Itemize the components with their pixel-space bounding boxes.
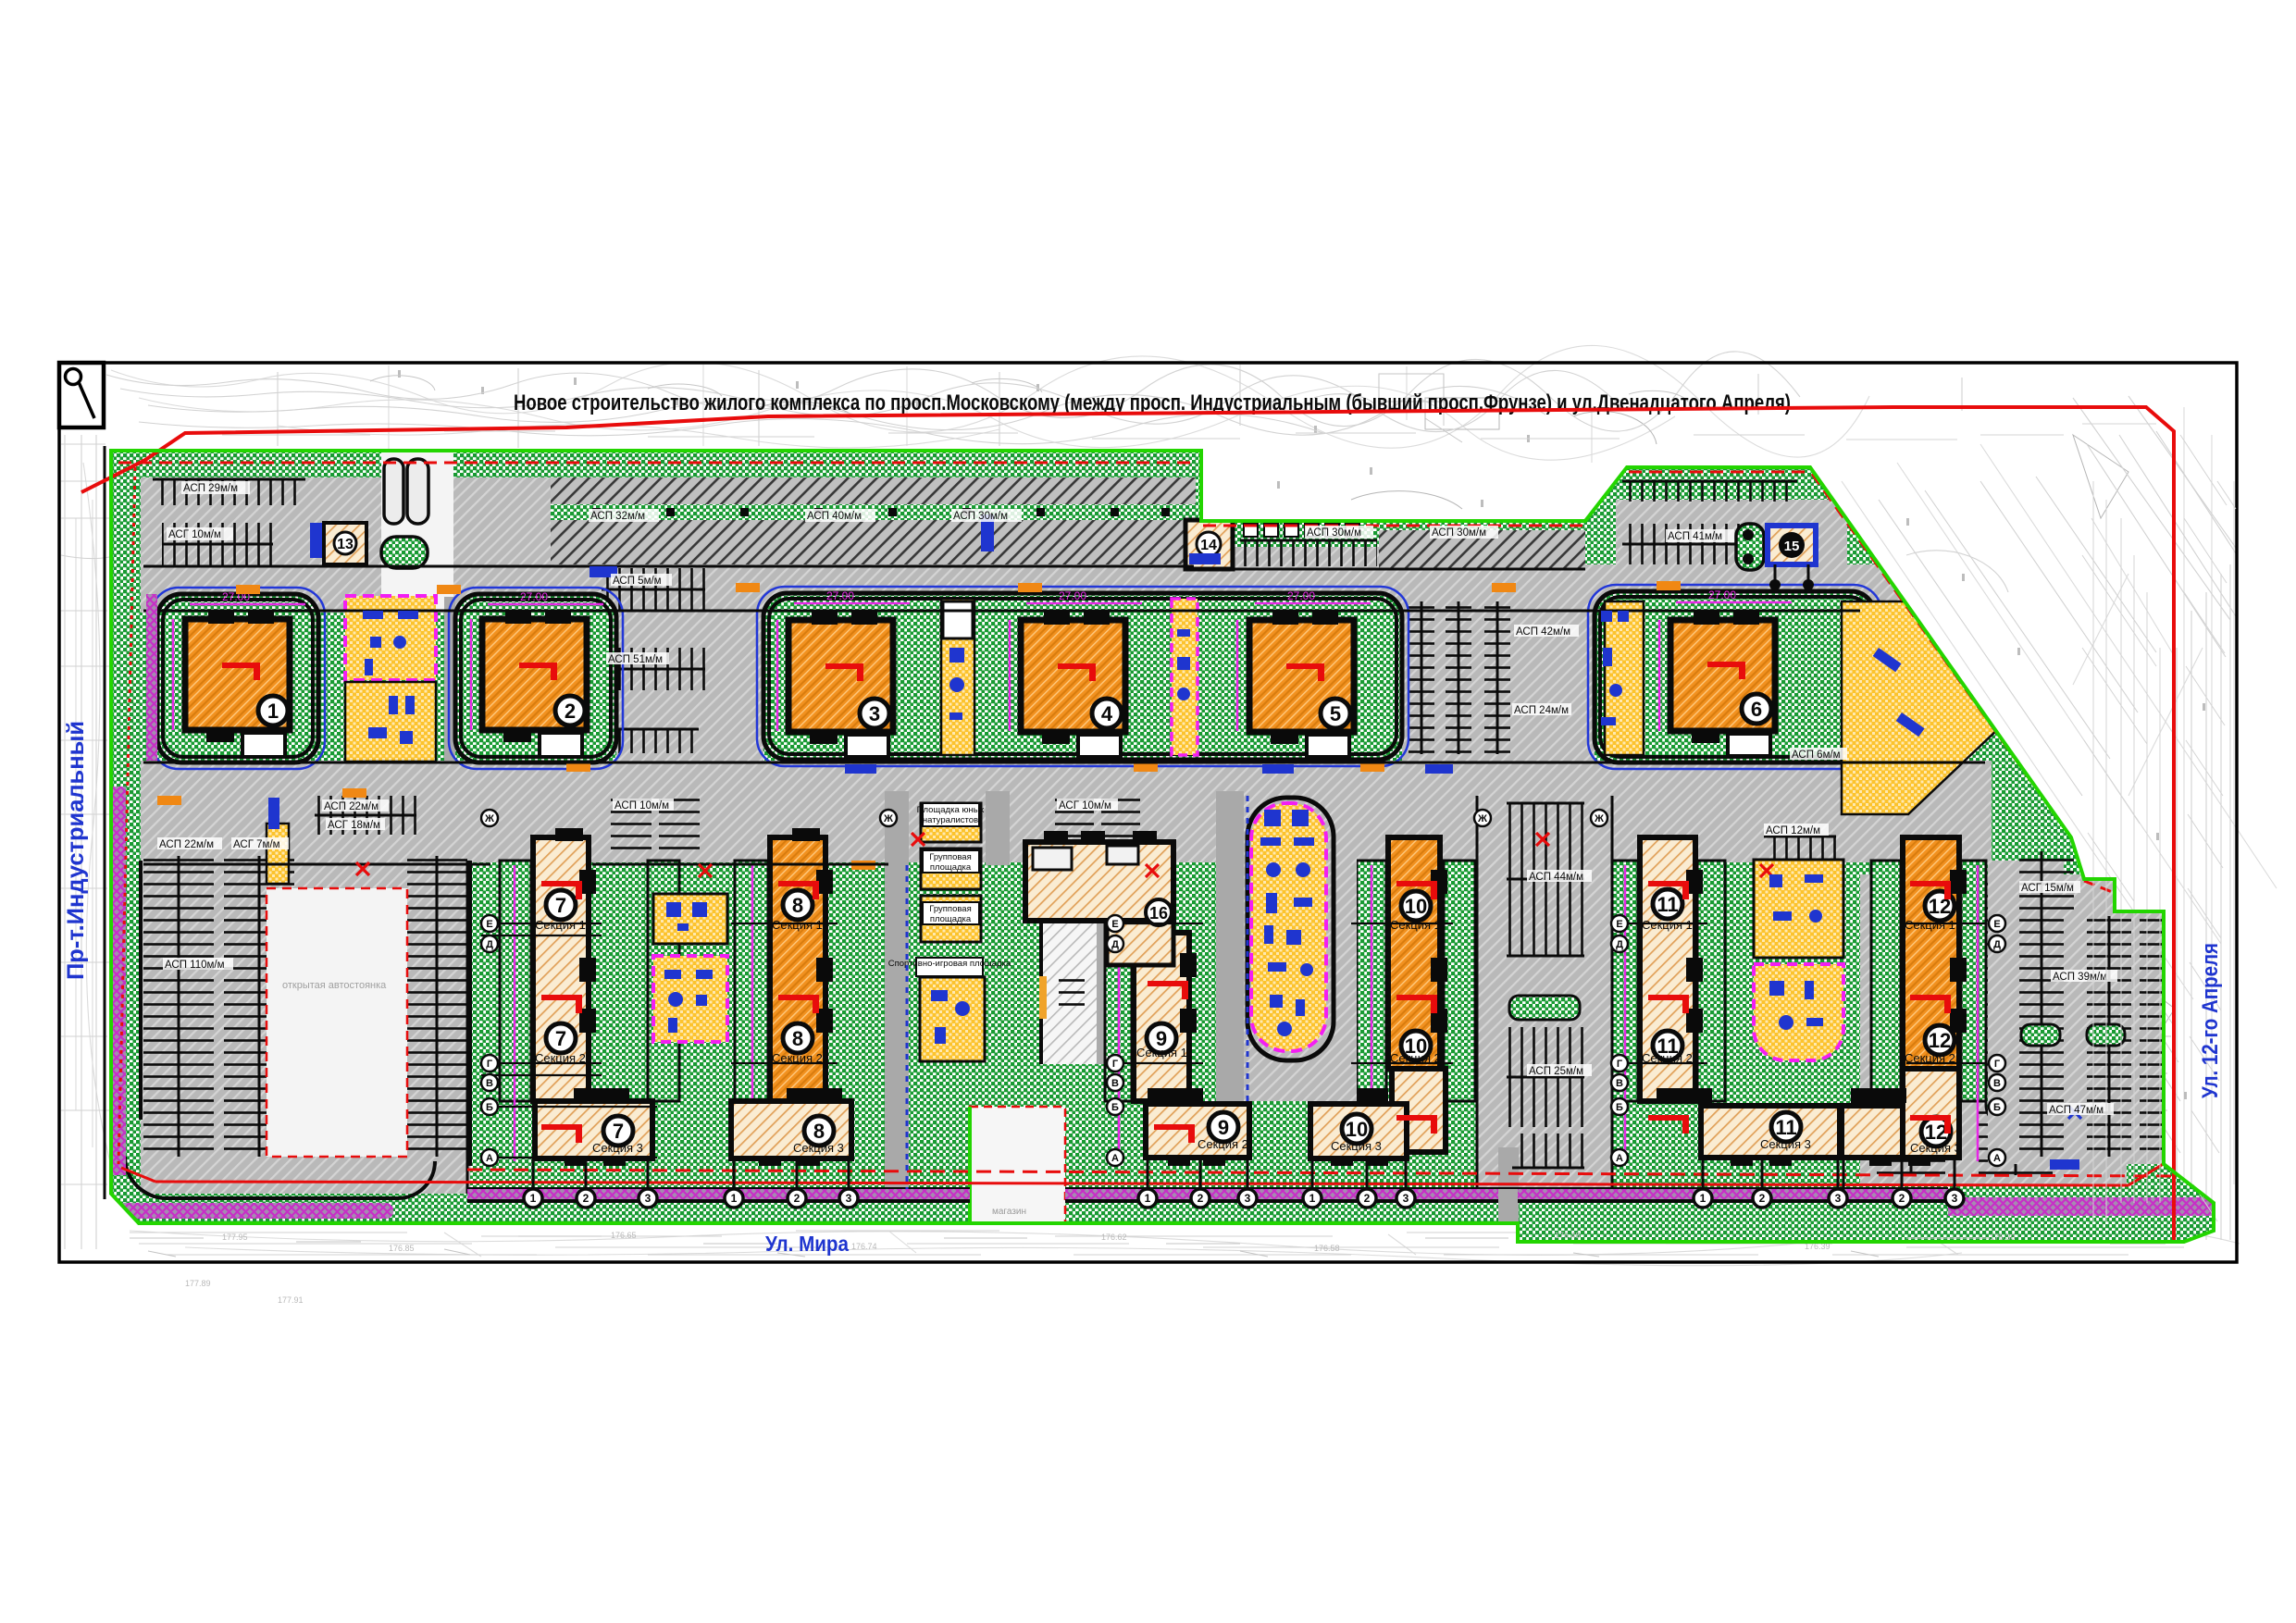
svg-text:АСП 25м/м: АСП 25м/м — [1529, 1066, 1583, 1077]
svg-text:4: 4 — [1101, 702, 1113, 725]
svg-text:Д: Д — [1111, 939, 1119, 950]
svg-text:Г: Г — [1112, 1059, 1119, 1070]
svg-text:2: 2 — [794, 1192, 800, 1205]
svg-text:Групповая: Групповая — [929, 852, 971, 862]
svg-text:открытая автостоянка: открытая автостоянка — [282, 980, 387, 991]
svg-text:Секция 1: Секция 1 — [1905, 918, 1955, 932]
svg-text:АСГ 10м/м: АСГ 10м/м — [1059, 800, 1111, 811]
svg-text:АСП 110м/м: АСП 110м/м — [165, 960, 225, 971]
svg-text:14: 14 — [1200, 538, 1217, 553]
svg-text:АСП 42м/м: АСП 42м/м — [1516, 626, 1570, 638]
svg-text:Д: Д — [1616, 939, 1623, 950]
svg-text:1: 1 — [267, 700, 279, 723]
svg-text:Ул. Мира: Ул. Мира — [765, 1232, 849, 1256]
svg-text:АСП 41м/м: АСП 41м/м — [1668, 531, 1722, 542]
svg-text:Секция 1: Секция 1 — [1136, 1046, 1187, 1059]
svg-text:27.00: 27.00 — [1287, 589, 1315, 602]
svg-text:АСП 51м/м: АСП 51м/м — [608, 654, 663, 665]
svg-text:Б: Б — [1616, 1102, 1623, 1113]
svg-text:Г: Г — [1994, 1059, 2001, 1070]
svg-text:Секция 3: Секция 3 — [1331, 1139, 1382, 1153]
svg-text:1: 1 — [1309, 1192, 1316, 1205]
svg-text:Ж: Ж — [1594, 813, 1604, 824]
svg-text:7: 7 — [555, 894, 566, 917]
svg-text:Секция 1: Секция 1 — [535, 918, 586, 932]
svg-text:Секция 3: Секция 3 — [592, 1141, 643, 1155]
svg-text:В: В — [1616, 1078, 1623, 1089]
svg-text:9: 9 — [1218, 1116, 1229, 1139]
svg-text:3: 3 — [1835, 1192, 1842, 1205]
svg-text:Пр-т.Индустриальный: Пр-т.Индустриальный — [63, 721, 89, 980]
svg-text:А: А — [1616, 1153, 1623, 1164]
svg-text:Д: Д — [1993, 939, 2001, 950]
svg-text:Ж: Ж — [883, 813, 893, 824]
svg-text:27.00: 27.00 — [1059, 589, 1086, 602]
svg-text:16: 16 — [1149, 904, 1168, 923]
svg-text:АСГ 15м/м: АСГ 15м/м — [2021, 883, 2074, 894]
svg-text:А: А — [486, 1153, 493, 1164]
svg-text:Секция 2: Секция 2 — [1198, 1137, 1248, 1151]
svg-text:АСП 5м/м: АСП 5м/м — [613, 576, 662, 587]
svg-text:1: 1 — [1700, 1192, 1706, 1205]
svg-text:176.65: 176.65 — [611, 1231, 637, 1240]
svg-text:АСП 30м/м: АСП 30м/м — [953, 511, 1008, 522]
svg-text:АСП 24м/м: АСП 24м/м — [1514, 705, 1569, 716]
svg-text:АСП 29м/м: АСП 29м/м — [183, 483, 238, 494]
svg-text:3: 3 — [869, 702, 880, 725]
svg-text:8: 8 — [792, 894, 803, 917]
svg-text:Секция 3: Секция 3 — [1760, 1137, 1811, 1151]
svg-text:Групповая: Групповая — [929, 904, 971, 914]
svg-text:1: 1 — [530, 1192, 537, 1205]
svg-text:15: 15 — [1784, 539, 1800, 554]
svg-text:Б: Б — [1111, 1102, 1119, 1113]
svg-text:АСП 44м/м: АСП 44м/м — [1529, 872, 1583, 883]
svg-text:11: 11 — [1657, 893, 1678, 916]
svg-text:176.48: 176.48 — [1555, 1231, 1581, 1240]
svg-text:176.62: 176.62 — [1101, 1233, 1127, 1242]
svg-text:177.91: 177.91 — [278, 1295, 304, 1305]
svg-text:2: 2 — [565, 700, 576, 723]
svg-text:8: 8 — [813, 1120, 825, 1143]
svg-text:176.74: 176.74 — [851, 1242, 877, 1251]
svg-text:АСГ 18м/м: АСГ 18м/м — [328, 820, 380, 831]
svg-text:27.00: 27.00 — [520, 590, 548, 603]
svg-text:3: 3 — [846, 1192, 852, 1205]
svg-text:А: А — [1993, 1153, 2001, 1164]
svg-text:5: 5 — [1330, 702, 1341, 725]
svg-text:АСП 10м/м: АСП 10м/м — [614, 800, 669, 811]
svg-text:магазин: магазин — [992, 1207, 1026, 1217]
svg-text:177.89: 177.89 — [185, 1279, 211, 1288]
svg-text:1: 1 — [731, 1192, 738, 1205]
svg-text:натуралистов: натуралистов — [923, 815, 978, 825]
svg-text:Е: Е — [1111, 919, 1118, 930]
svg-text:176.85: 176.85 — [389, 1244, 415, 1253]
svg-text:АСП 32м/м: АСП 32м/м — [590, 511, 645, 522]
svg-text:13: 13 — [337, 537, 354, 552]
svg-text:10: 10 — [1346, 1118, 1368, 1141]
svg-text:2: 2 — [1899, 1192, 1905, 1205]
svg-text:7: 7 — [555, 1027, 566, 1050]
svg-text:АСГ 7м/м: АСГ 7м/м — [233, 839, 280, 850]
svg-text:АСП 22м/м: АСП 22м/м — [159, 839, 214, 850]
svg-text:АСП 40м/м: АСП 40м/м — [807, 511, 862, 522]
svg-text:2: 2 — [1759, 1192, 1766, 1205]
svg-text:АСП 30м/м: АСП 30м/м — [1307, 527, 1361, 539]
svg-text:2: 2 — [583, 1192, 590, 1205]
svg-text:АСП 6м/м: АСП 6м/м — [1792, 750, 1841, 761]
svg-text:2: 2 — [1198, 1192, 1204, 1205]
svg-text:АСП 22м/м: АСП 22м/м — [324, 801, 379, 812]
svg-text:12: 12 — [1929, 1029, 1951, 1052]
svg-text:АСП 39м/м: АСП 39м/м — [2053, 972, 2107, 983]
svg-text:177.95: 177.95 — [222, 1233, 248, 1242]
svg-text:10: 10 — [1405, 895, 1427, 918]
svg-text:Е: Е — [1616, 919, 1622, 930]
svg-text:В: В — [486, 1078, 493, 1089]
svg-text:Ж: Ж — [484, 813, 494, 824]
svg-text:176.58: 176.58 — [1314, 1244, 1340, 1253]
svg-text:А: А — [1111, 1153, 1119, 1164]
svg-text:Ж: Ж — [1477, 813, 1487, 824]
svg-text:В: В — [1993, 1078, 2001, 1089]
svg-text:3: 3 — [645, 1192, 652, 1205]
svg-text:3: 3 — [1403, 1192, 1409, 1205]
svg-text:8: 8 — [792, 1027, 803, 1050]
svg-text:Б: Б — [486, 1102, 493, 1113]
svg-text:Д: Д — [486, 939, 493, 950]
svg-text:27.00: 27.00 — [826, 589, 854, 602]
svg-text:3: 3 — [1245, 1192, 1251, 1205]
svg-text:Секция 1: Секция 1 — [772, 918, 823, 932]
svg-text:11: 11 — [1775, 1116, 1796, 1139]
svg-text:АСП 12м/м: АСП 12м/м — [1766, 825, 1820, 836]
svg-text:Секция 1: Секция 1 — [1390, 918, 1441, 932]
svg-text:АСГ 10м/м: АСГ 10м/м — [168, 529, 221, 540]
svg-text:Площадка юных: Площадка юных — [917, 805, 985, 815]
svg-text:27.00: 27.00 — [1708, 588, 1736, 601]
svg-text:6: 6 — [1751, 698, 1762, 721]
svg-text:Г: Г — [1617, 1059, 1623, 1070]
svg-text:2: 2 — [1364, 1192, 1371, 1205]
svg-text:Г: Г — [487, 1059, 493, 1070]
svg-text:7: 7 — [613, 1120, 624, 1143]
svg-text:Секция 3: Секция 3 — [793, 1141, 844, 1155]
svg-text:площадка: площадка — [930, 862, 972, 873]
svg-text:АСП 47м/м: АСП 47м/м — [2049, 1105, 2104, 1116]
svg-text:Ул. 12-го Апреля: Ул. 12-го Апреля — [2198, 943, 2223, 1098]
svg-text:В: В — [1111, 1078, 1119, 1089]
svg-text:1: 1 — [1145, 1192, 1151, 1205]
svg-text:Е: Е — [486, 919, 492, 930]
svg-text:АСП 30м/м: АСП 30м/м — [1432, 527, 1486, 539]
svg-text:площадка: площадка — [930, 914, 972, 924]
svg-text:3: 3 — [1952, 1192, 1958, 1205]
svg-text:Е: Е — [1993, 919, 2000, 930]
svg-text:Секция 3: Секция 3 — [1910, 1141, 1961, 1155]
svg-text:Секция 1: Секция 1 — [1642, 918, 1693, 932]
